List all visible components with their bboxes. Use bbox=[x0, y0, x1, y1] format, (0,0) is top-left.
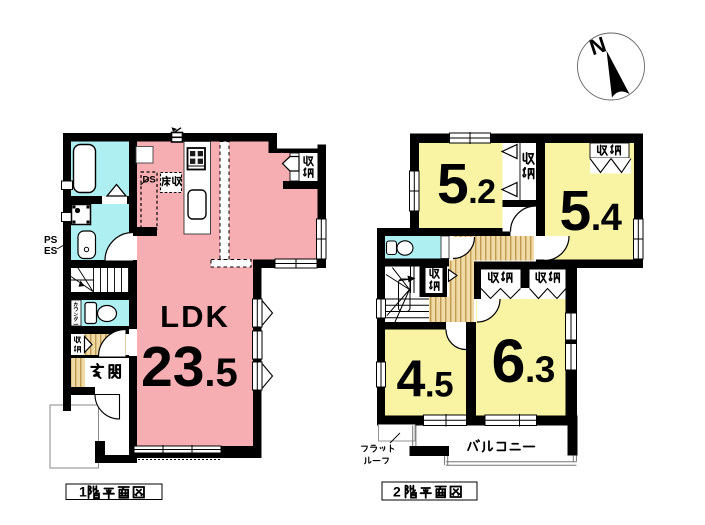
svg-text:ES: ES bbox=[44, 246, 58, 257]
svg-text:DS: DS bbox=[143, 175, 156, 186]
svg-text:LDK: LDK bbox=[160, 299, 230, 334]
svg-text:1: 1 bbox=[79, 484, 87, 500]
svg-text:PS: PS bbox=[44, 235, 58, 246]
svg-text:2: 2 bbox=[393, 484, 401, 500]
